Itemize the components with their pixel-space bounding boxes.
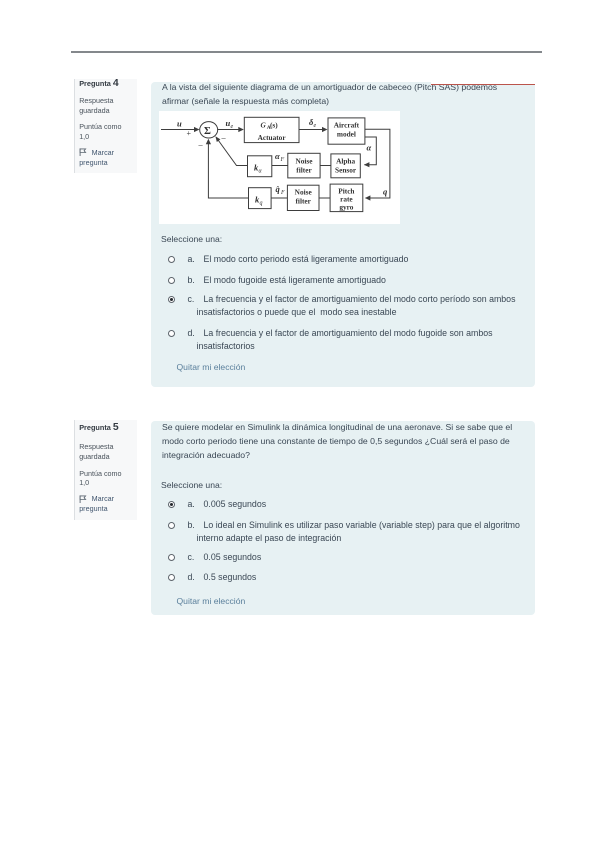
- svg-text:Actuator: Actuator: [257, 133, 286, 142]
- svg-text:−: −: [221, 133, 226, 143]
- svg-text:Σ: Σ: [204, 125, 211, 136]
- svg-text:α: α: [366, 142, 371, 152]
- svg-text:q: q: [259, 200, 262, 206]
- svg-text:G: G: [260, 120, 266, 129]
- svg-text:Noise: Noise: [294, 187, 312, 196]
- svg-text:e: e: [230, 124, 233, 130]
- svg-text:filter: filter: [295, 196, 311, 205]
- svg-text:Noise: Noise: [295, 156, 313, 165]
- svg-text:e: e: [313, 123, 316, 129]
- svg-text:F: F: [279, 157, 284, 163]
- svg-text:Sensor: Sensor: [335, 165, 357, 174]
- svg-text:Aircraft: Aircraft: [333, 120, 359, 129]
- svg-text:α: α: [275, 151, 280, 161]
- svg-text:gyro: gyro: [339, 202, 353, 211]
- svg-text:Alpha: Alpha: [336, 156, 355, 165]
- svg-text:−: −: [198, 140, 203, 150]
- svg-text:model: model: [336, 129, 355, 138]
- svg-text:(s): (s): [270, 120, 278, 129]
- svg-text:filter: filter: [296, 165, 312, 174]
- svg-text:F: F: [280, 190, 285, 196]
- svg-text:+: +: [186, 128, 191, 137]
- svg-text:u: u: [177, 118, 182, 128]
